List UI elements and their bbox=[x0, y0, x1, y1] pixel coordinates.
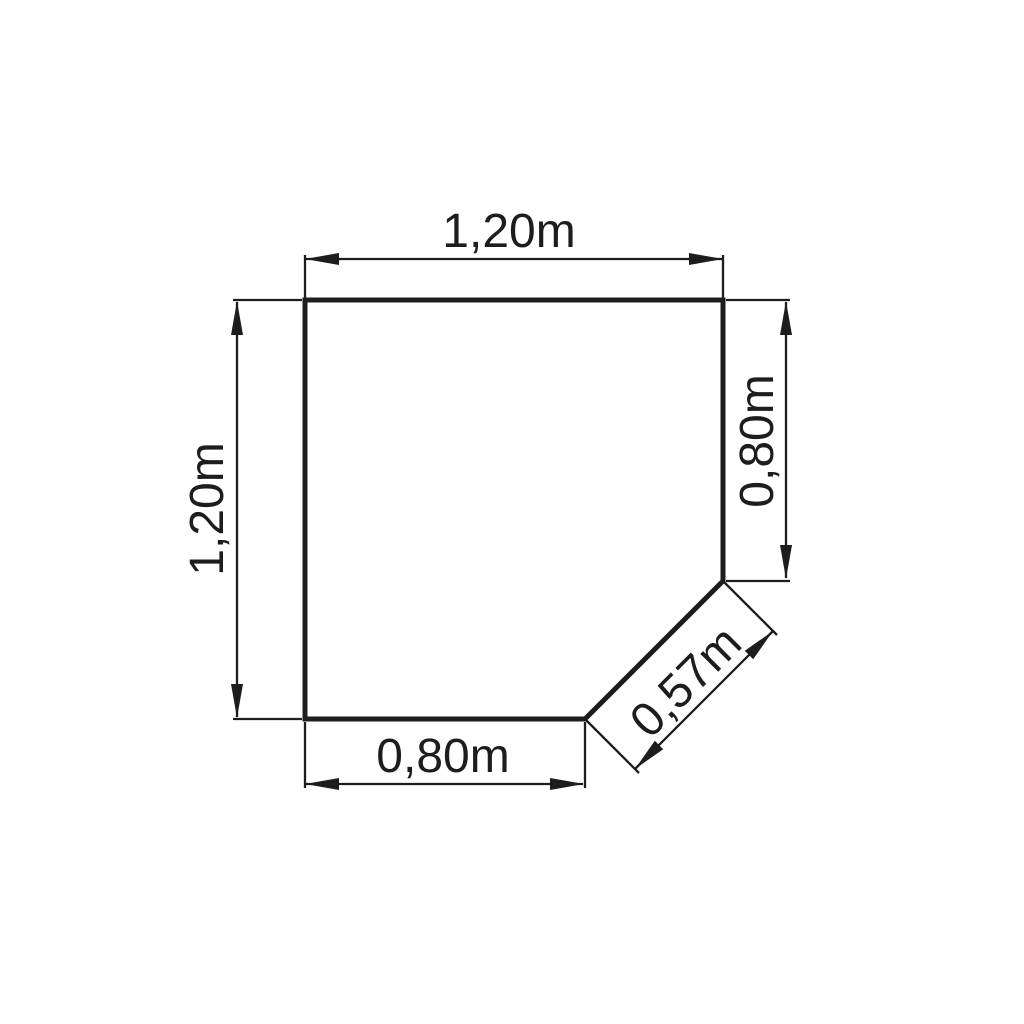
dim-label-right: 0,80m bbox=[731, 374, 784, 507]
plan-outline-shape bbox=[305, 300, 723, 719]
arrowhead-left-top bbox=[231, 301, 243, 335]
arrowhead-right-top bbox=[780, 301, 792, 335]
arrowhead-right-bottom bbox=[780, 545, 792, 579]
ext-line-diagonal-lower bbox=[585, 719, 639, 773]
arrowhead-top-left bbox=[305, 253, 339, 265]
arrowhead-bottom-right bbox=[550, 778, 584, 790]
arrowhead-top-right bbox=[689, 253, 723, 265]
drawing-canvas: 1,20m 1,20m 0,80m 0,80m 0,57m bbox=[0, 0, 1024, 1024]
dim-label-top: 1,20m bbox=[442, 205, 575, 258]
arrowhead-bottom-left bbox=[305, 778, 339, 790]
arrowhead-left-bottom bbox=[231, 684, 243, 718]
dim-label-left: 1,20m bbox=[181, 442, 234, 575]
ext-line-diagonal-upper bbox=[723, 581, 777, 635]
dimensioned-plan-svg: 1,20m 1,20m 0,80m 0,80m 0,57m bbox=[0, 0, 1024, 1024]
dim-label-bottom: 0,80m bbox=[376, 730, 509, 783]
